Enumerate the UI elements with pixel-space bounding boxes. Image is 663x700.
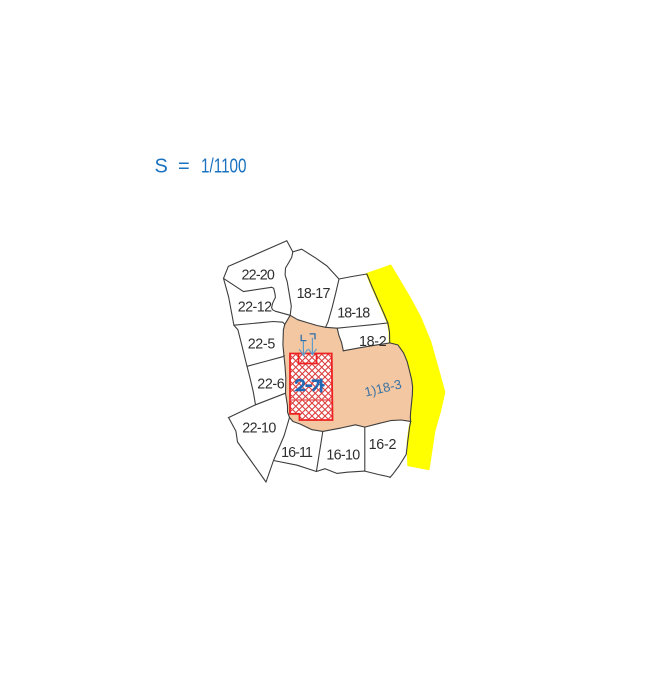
- svg-text:22-6: 22-6: [257, 376, 284, 392]
- svg-text:18-18: 18-18: [337, 305, 370, 321]
- svg-text:22-12: 22-12: [238, 300, 272, 316]
- svg-text:=: =: [178, 156, 190, 178]
- svg-text:22-10: 22-10: [242, 420, 276, 436]
- svg-text:1/1100: 1/1100: [201, 156, 247, 178]
- svg-text:S: S: [155, 156, 168, 178]
- svg-text:22-5: 22-5: [248, 337, 276, 353]
- svg-text:16-2: 16-2: [369, 437, 397, 453]
- svg-text:18-2: 18-2: [359, 334, 387, 350]
- svg-text:22-20: 22-20: [242, 268, 275, 284]
- svg-text:16-11: 16-11: [281, 445, 313, 461]
- svg-text:18-17: 18-17: [297, 286, 331, 302]
- svg-text:16-10: 16-10: [326, 447, 360, 463]
